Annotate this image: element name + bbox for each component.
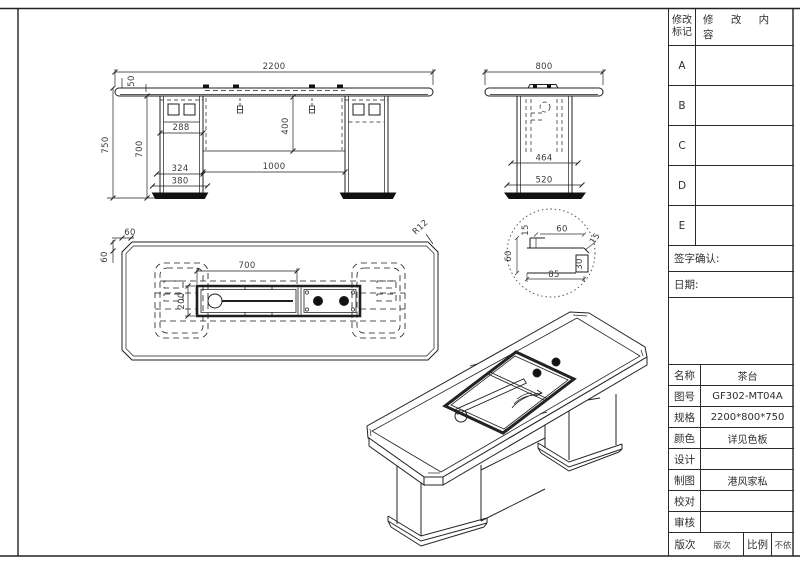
info-label-audit: 审核 bbox=[669, 512, 701, 533]
info-value-name: 茶台 bbox=[701, 365, 794, 386]
dim-200: 200 bbox=[177, 292, 187, 309]
info-label-check: 校对 bbox=[669, 491, 701, 512]
dim-30: 30 bbox=[575, 258, 585, 269]
revision-row-b-content bbox=[696, 86, 794, 126]
revision-mark-header: 修改 标记 bbox=[669, 9, 696, 46]
revision-row-d-content bbox=[696, 166, 794, 206]
dim-15-top: 15 bbox=[521, 224, 531, 235]
front-view-dims: 2200 50 750 700 288 400 324 380 1000 bbox=[101, 62, 291, 187]
dim-50: 50 bbox=[127, 75, 137, 86]
date-label: 日期: bbox=[669, 272, 794, 298]
version-value: 版次 bbox=[701, 533, 743, 556]
scale-label: 比例 bbox=[743, 533, 771, 556]
notes-empty-area bbox=[669, 298, 794, 365]
revision-content-header: 修 改 内 容 bbox=[696, 9, 794, 46]
revision-mark-header-line1: 修改 bbox=[672, 15, 692, 27]
revision-row-a-content bbox=[696, 46, 794, 86]
plan-view-dims: 60 60 R12 700 200 bbox=[100, 218, 431, 310]
info-value-check bbox=[701, 491, 794, 512]
dim-288: 288 bbox=[172, 123, 189, 133]
signature-confirm-label: 签字确认: bbox=[669, 246, 794, 272]
drawing-sheet: 2200 50 750 700 288 400 324 380 1000 bbox=[0, 0, 800, 567]
info-label-drawing-no: 图号 bbox=[669, 386, 701, 407]
revision-row-c-content bbox=[696, 126, 794, 166]
info-label-color: 颜色 bbox=[669, 428, 701, 449]
dim-15-lip: 15 bbox=[588, 231, 603, 246]
revision-row-c: C bbox=[669, 126, 696, 166]
info-label-name: 名称 bbox=[669, 365, 701, 386]
dim-60-detail-left: 60 bbox=[504, 250, 514, 261]
info-label-draft: 制图 bbox=[669, 470, 701, 491]
info-value-draft: 港风家私 bbox=[701, 470, 794, 491]
dim-2200: 2200 bbox=[263, 62, 286, 72]
revision-row-a: A bbox=[669, 46, 696, 86]
plan-view bbox=[111, 234, 439, 360]
dim-700-plan: 700 bbox=[238, 261, 255, 271]
dim-700: 700 bbox=[135, 140, 145, 157]
dim-380: 380 bbox=[171, 177, 188, 187]
dim-520: 520 bbox=[535, 176, 552, 186]
side-view-dims: 800 464 520 bbox=[535, 62, 552, 186]
dim-750: 750 bbox=[101, 136, 111, 153]
version-label: 版次 bbox=[669, 533, 701, 556]
detail-view bbox=[507, 209, 595, 297]
info-value-color: 详见色板 bbox=[701, 428, 794, 449]
dim-800: 800 bbox=[535, 62, 552, 72]
dim-400: 400 bbox=[281, 117, 291, 134]
title-block: 修改 标记 修 改 内 容 A B C D E 签字确认: 日期: 名称 茶台 … bbox=[668, 9, 793, 556]
dim-464: 464 bbox=[535, 154, 552, 164]
info-value-drawing-no: GF302-MT04A bbox=[701, 386, 794, 407]
info-value-spec: 2200*800*750 bbox=[701, 407, 794, 428]
info-value-audit bbox=[701, 512, 794, 533]
isometric-view bbox=[367, 312, 647, 546]
info-label-design: 设计 bbox=[669, 449, 701, 470]
dim-r12: R12 bbox=[411, 218, 431, 237]
info-value-design bbox=[701, 449, 794, 470]
dim-85: 85 bbox=[548, 270, 559, 280]
revision-mark-header-line2: 标记 bbox=[672, 27, 692, 39]
dim-60-left: 60 bbox=[100, 251, 110, 262]
dim-60-detail-top: 60 bbox=[556, 225, 567, 235]
revision-row-e-content bbox=[696, 206, 794, 246]
dim-1000: 1000 bbox=[263, 162, 286, 172]
info-label-spec: 规格 bbox=[669, 407, 701, 428]
dim-60-top: 60 bbox=[124, 228, 135, 238]
scale-value: 不依 bbox=[771, 533, 794, 556]
dim-324: 324 bbox=[171, 164, 188, 174]
front-view bbox=[107, 69, 436, 201]
revision-row-d: D bbox=[669, 166, 696, 206]
revision-row-e: E bbox=[669, 206, 696, 246]
revision-row-b: B bbox=[669, 86, 696, 126]
iso-tabletop bbox=[367, 312, 647, 485]
